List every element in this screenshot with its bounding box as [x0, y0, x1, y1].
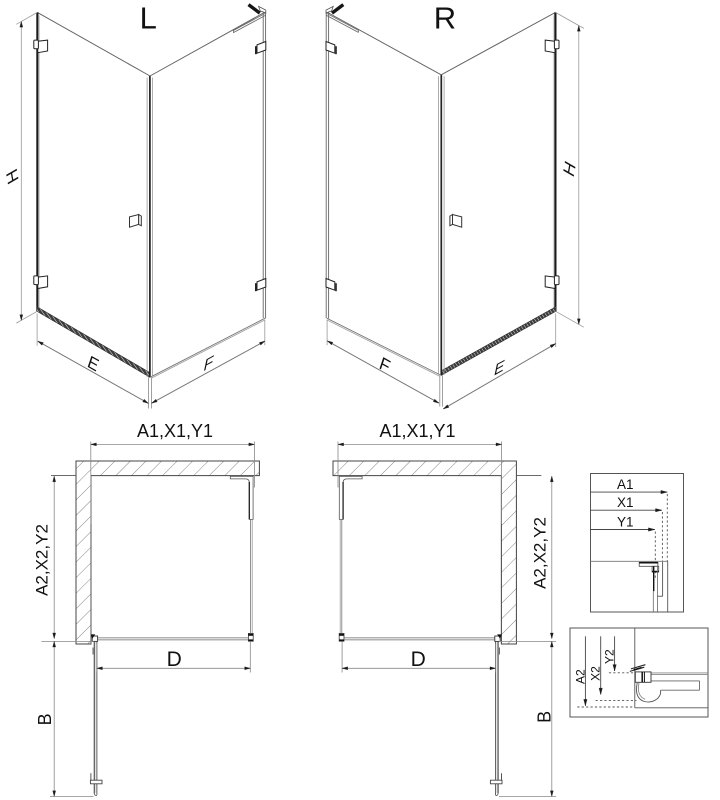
svg-text:D: D	[167, 648, 182, 671]
svg-text:A1,X1,Y1: A1,X1,Y1	[379, 421, 455, 441]
svg-text:B: B	[535, 711, 555, 723]
svg-text:B: B	[35, 713, 55, 725]
svg-text:A1,X1,Y1: A1,X1,Y1	[137, 421, 213, 441]
svg-text:D: D	[411, 648, 426, 671]
svg-text:X2: X2	[589, 666, 603, 681]
svg-text:Y2: Y2	[603, 649, 617, 664]
svg-text:A2,X2,Y2: A2,X2,Y2	[531, 517, 550, 589]
svg-text:R: R	[434, 1, 456, 36]
svg-text:A2: A2	[573, 669, 587, 684]
svg-text:A1: A1	[617, 477, 634, 492]
svg-text:Y1: Y1	[617, 515, 634, 530]
svg-text:X1: X1	[617, 495, 634, 510]
svg-text:L: L	[140, 1, 157, 36]
svg-text:A2,X2,Y2: A2,X2,Y2	[32, 524, 51, 596]
